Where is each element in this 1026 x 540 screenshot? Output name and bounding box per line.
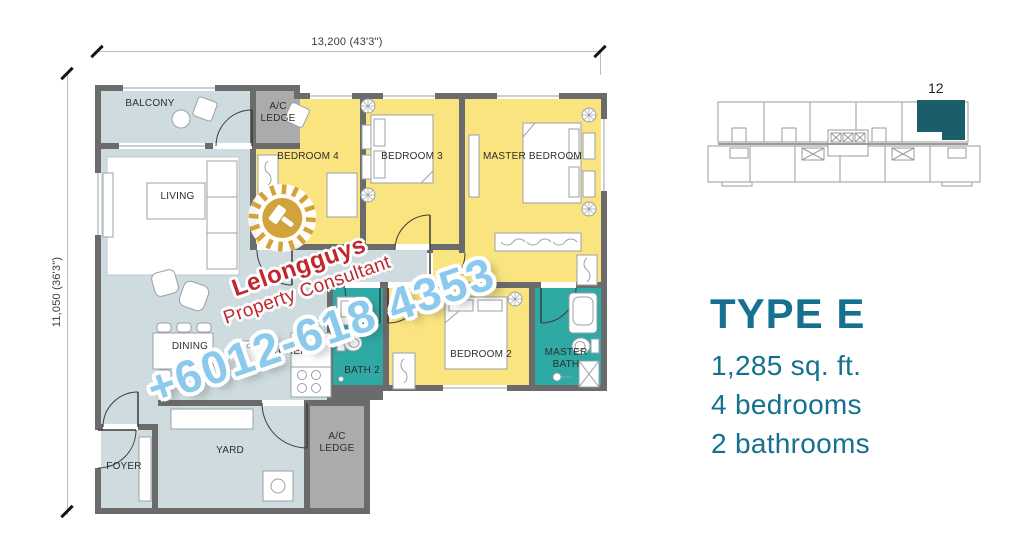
floorplan-page: 13,200 (43'3") 11,050 (36'3") (0, 0, 1026, 540)
room-label-master-bath: MASTER BATH (535, 347, 597, 370)
room-label-ac-ledge-bottom: A/C LEDGE (313, 431, 361, 454)
room-label-living: LIVING (140, 191, 215, 203)
room-label-bedroom4: BEDROOM 4 (263, 151, 353, 163)
unit-type-title: TYPE E (710, 290, 865, 338)
unit-area: 1,285 sq. ft. (711, 350, 861, 382)
room-label-yard: YARD (192, 445, 268, 457)
keyplan-drawing (702, 88, 992, 188)
room-label-master-bedroom: MASTER BEDROOM (470, 151, 595, 163)
dimension-line-top (95, 51, 600, 52)
room-label-foyer: FOYER (98, 461, 150, 473)
room-label-bedroom2: BEDROOM 2 (431, 349, 531, 361)
room-label-bedroom3: BEDROOM 3 (367, 151, 457, 163)
dimension-height-label: 11,050 (36'3") (51, 222, 63, 362)
room-label-bath2: BATH 2 (333, 365, 391, 377)
room-label-ac-ledge-top: A/C LEDGE (256, 101, 300, 124)
floorplan: BALCONY A/C LEDGE BEDROOM 4 BEDROOM 3 MA… (95, 85, 607, 520)
room-label-dining: DINING (152, 341, 228, 353)
unit-bedrooms: 4 bedrooms (711, 389, 862, 421)
dimension-ext-top-right (600, 53, 601, 75)
dimension-line-left (67, 73, 68, 515)
room-label-kitchen: KITCHEN (247, 346, 323, 358)
dimension-width-label: 13,200 (43'3") (247, 36, 447, 48)
room-label-balcony: BALCONY (100, 98, 200, 110)
unit-bathrooms: 2 bathrooms (711, 428, 870, 460)
